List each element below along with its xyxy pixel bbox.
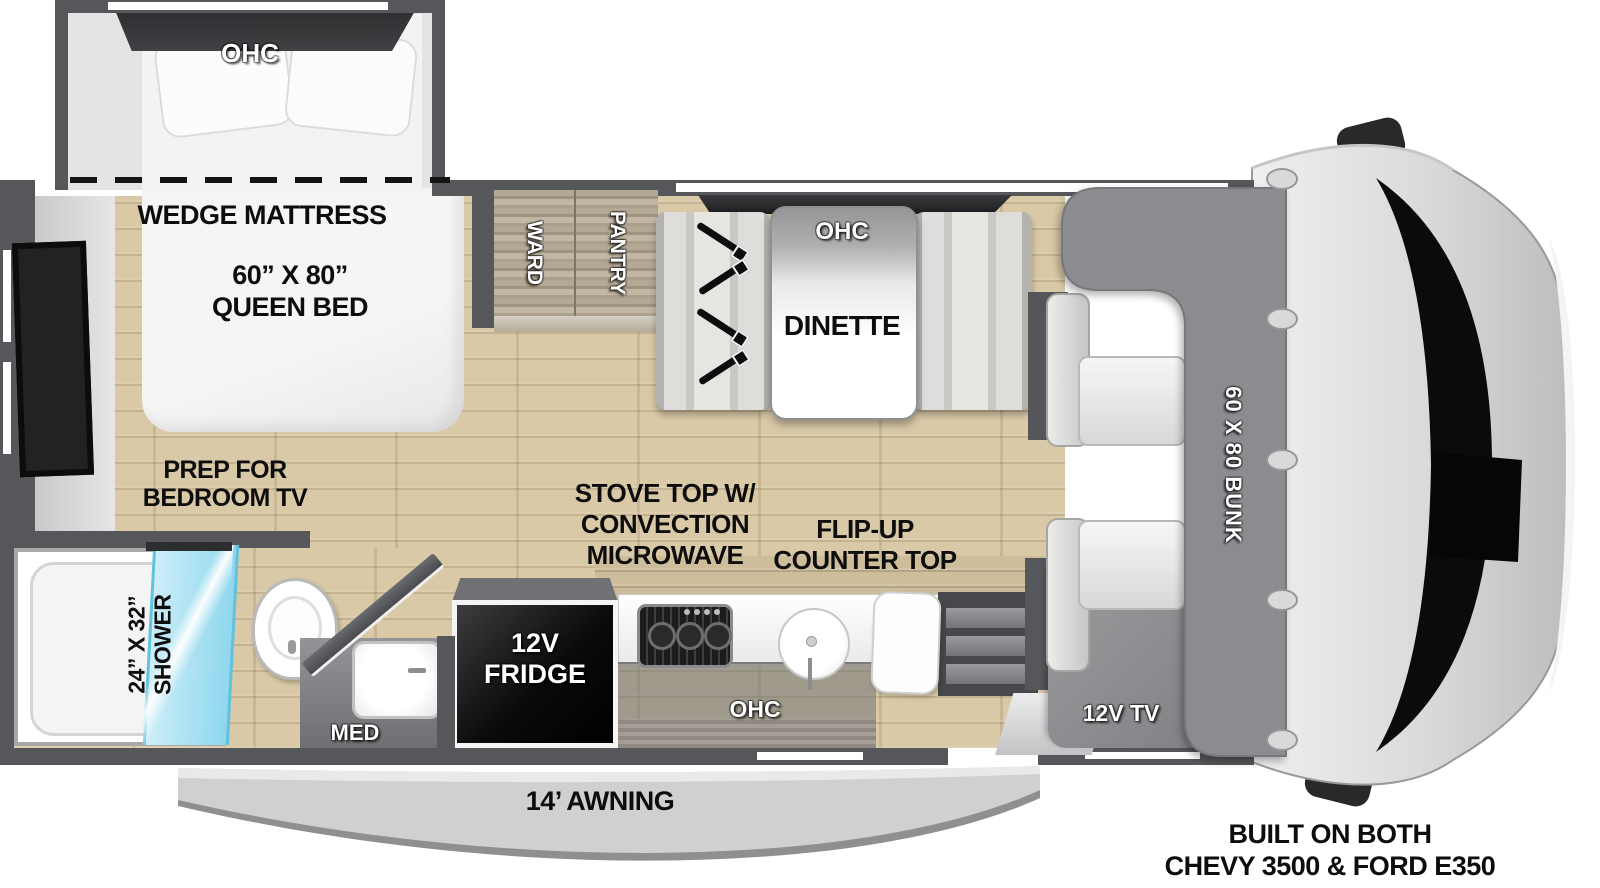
chassis-note: BUILT ON BOTHCHEVY 3500 & FORD E350 bbox=[1100, 818, 1560, 883]
cabinet-front-face bbox=[494, 316, 658, 332]
awning bbox=[170, 760, 1050, 888]
ward-label: WARD bbox=[522, 221, 546, 285]
dinette-ohc-label: OHC bbox=[795, 218, 889, 246]
slide-dash-line bbox=[70, 177, 450, 183]
bath-right-wall bbox=[437, 636, 455, 748]
kitchen-ohc-label: OHC bbox=[700, 696, 810, 722]
shower-label: 24” X 32”SHOWER bbox=[60, 570, 240, 720]
stove-burner bbox=[704, 622, 732, 650]
bottom-window bbox=[757, 752, 863, 760]
bunk-label: 60 X 80 BUNK bbox=[1220, 386, 1246, 544]
rear-window bbox=[3, 250, 11, 342]
bedroom-partition-wall bbox=[472, 188, 494, 328]
pantry: PANTRY bbox=[576, 190, 658, 316]
kitchen-cabinet-front bbox=[618, 719, 876, 748]
hinge-pin bbox=[1266, 308, 1298, 330]
awning-label: 14’ AWNING bbox=[450, 786, 750, 816]
wedge-mattress-label: WEDGE MATTRESS bbox=[117, 200, 407, 230]
toilet-drain bbox=[288, 640, 296, 654]
entry-steps bbox=[938, 592, 1038, 696]
hinge-pin bbox=[1266, 449, 1298, 471]
bedroom-tv-prep-label: PREP FORBEDROOM TV bbox=[110, 456, 340, 512]
rear-window bbox=[3, 362, 11, 454]
stove-knobs bbox=[684, 609, 690, 615]
bedroom-ohc-label: OHC bbox=[200, 40, 300, 66]
slideout-window bbox=[108, 2, 388, 10]
hinge-pin bbox=[1266, 168, 1298, 190]
sink-drain bbox=[806, 636, 817, 647]
dinette-label: DINETTE bbox=[778, 310, 906, 341]
fridge-label: 12VFRIDGE bbox=[462, 628, 608, 690]
pantry-label: PANTRY bbox=[605, 211, 629, 295]
rear-tv-panel bbox=[12, 241, 94, 477]
dinette-bench-left bbox=[656, 212, 770, 410]
bath-faucet-icon bbox=[408, 668, 426, 673]
bunk-label-wrap: 60 X 80 BUNK bbox=[1123, 355, 1343, 575]
med-label: MED bbox=[320, 720, 390, 746]
bed-type-label: QUEEN BED bbox=[165, 292, 415, 322]
flip-up-counter bbox=[870, 591, 942, 695]
sink-faucet-icon bbox=[808, 658, 812, 690]
dinette-bench-right bbox=[914, 212, 1032, 410]
stove-label: STOVE TOP W/CONVECTIONMICROWAVE bbox=[540, 478, 790, 572]
stove-burner bbox=[648, 622, 676, 650]
hinge-pin bbox=[1266, 589, 1298, 611]
flip-counter-label: FLIP-UPCOUNTER TOP bbox=[760, 514, 970, 576]
slideout-wall-right bbox=[432, 0, 445, 196]
slideout-wall-left bbox=[55, 0, 68, 190]
hood-shadow bbox=[1430, 452, 1522, 562]
bath-sink bbox=[352, 641, 442, 719]
fridge-top-face bbox=[452, 578, 618, 602]
bath-left-wall bbox=[0, 533, 14, 765]
hinge-pin bbox=[1266, 729, 1298, 751]
rv-floorplan: OHC WEDGE MATTRESS 60” X 80” QUEEN BED P… bbox=[0, 0, 1600, 888]
wardrobe: WARD bbox=[494, 190, 576, 316]
stove-burner bbox=[676, 622, 704, 650]
shower-glass-cap bbox=[146, 542, 232, 551]
bed-size-label: 60” X 80” bbox=[165, 260, 415, 290]
